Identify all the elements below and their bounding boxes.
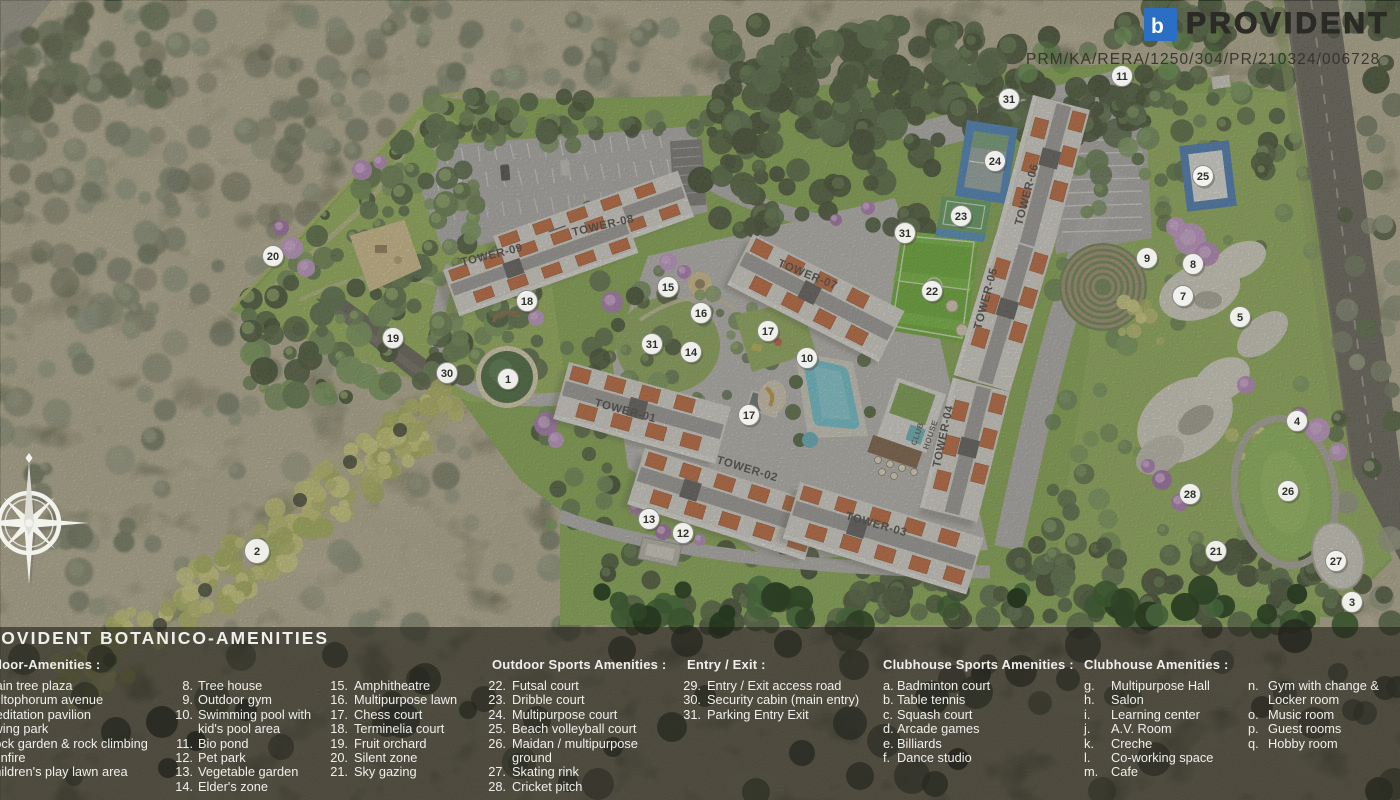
svg-text:Guest rooms: Guest rooms [1268,721,1341,736]
svg-text:20: 20 [267,251,279,263]
svg-text:PROVIDENT: PROVIDENT [1186,7,1390,40]
svg-text:Rock garden & rock climbing: Rock garden & rock climbing [0,736,148,751]
svg-text:k.: k. [1084,736,1094,751]
svg-text:22: 22 [926,286,938,298]
svg-text:25: 25 [1197,171,1209,183]
svg-text:Entry / Exit access road: Entry / Exit access road [707,678,841,693]
svg-text:Badminton court: Badminton court [897,678,991,693]
svg-text:8: 8 [1190,259,1196,271]
svg-text:Skating rink: Skating rink [512,764,579,779]
svg-text:21.: 21. [330,764,348,779]
svg-text:24.: 24. [488,707,506,722]
svg-text:Chess court: Chess court [354,707,423,722]
svg-text:Children's play lawn area: Children's play lawn area [0,764,128,779]
svg-text:31: 31 [899,228,911,240]
svg-text:17: 17 [762,326,774,338]
svg-text:20.: 20. [330,750,348,765]
svg-text:n.: n. [1248,678,1259,693]
svg-text:14: 14 [685,347,698,359]
svg-text:Peltophorum avenue: Peltophorum avenue [0,692,103,707]
svg-text:Music room: Music room [1268,707,1334,722]
svg-text:28.: 28. [488,779,506,794]
svg-text:1: 1 [505,374,511,386]
svg-text:11.: 11. [176,736,193,751]
svg-text:e.: e. [883,736,894,751]
svg-text:19: 19 [387,333,399,345]
svg-text:13.: 13. [175,764,193,779]
svg-text:31: 31 [1003,94,1015,106]
svg-text:d.: d. [883,721,894,736]
svg-text:Bio pond: Bio pond [198,736,249,751]
svg-text:Table tennis: Table tennis [897,692,965,707]
svg-text:q.: q. [1248,736,1259,751]
svg-text:30.: 30. [683,692,701,707]
svg-text:Parking Entry Exit: Parking Entry Exit [707,707,809,722]
svg-text:A.V. Room: A.V. Room [1111,721,1172,736]
svg-text:13: 13 [643,514,655,526]
svg-text:14.: 14. [175,779,193,794]
svg-text:m.: m. [1084,764,1098,779]
svg-text:7: 7 [1180,291,1186,303]
svg-text:30: 30 [441,368,453,380]
svg-text:18.: 18. [330,721,348,736]
svg-text:b: b [1151,15,1164,38]
svg-text:Learning center: Learning center [1111,707,1201,722]
svg-text:Cafe: Cafe [1111,764,1138,779]
svg-text:Outdoor Sports Amenities :: Outdoor Sports Amenities : [492,657,666,672]
svg-text:Creche: Creche [1111,736,1152,751]
svg-text:Amphitheatre: Amphitheatre [354,678,430,693]
svg-text:Elder's zone: Elder's zone [198,779,268,794]
svg-text:Sky gazing: Sky gazing [354,764,417,779]
svg-text:f.: f. [883,750,890,765]
svg-text:Vegetable garden: Vegetable garden [198,764,298,779]
svg-text:Multipurpose court: Multipurpose court [512,707,618,722]
svg-text:15.: 15. [330,678,348,693]
svg-text:h.: h. [1084,692,1095,707]
svg-text:Dribble court: Dribble court [512,692,585,707]
svg-text:p.: p. [1248,721,1259,736]
svg-text:Terminelia court: Terminelia court [354,721,445,736]
svg-text:27.: 27. [488,764,506,779]
svg-text:c.: c. [883,707,893,722]
svg-text:23.: 23. [488,692,506,707]
svg-text:Arcade games: Arcade games [897,721,980,736]
svg-text:29.: 29. [683,678,701,693]
svg-text:Security cabin (main entry): Security cabin (main entry) [707,692,859,707]
svg-text:26: 26 [1282,486,1294,498]
svg-text:22.: 22. [488,678,506,693]
svg-text:Co-working space: Co-working space [1111,750,1213,765]
svg-text:31.: 31. [683,707,701,722]
svg-text:31: 31 [646,339,658,351]
svg-text:Meditation pavilion: Meditation pavilion [0,707,91,722]
svg-text:l.: l. [1084,750,1090,765]
svg-text:o.: o. [1248,707,1259,722]
svg-text:Tree house: Tree house [198,678,262,693]
svg-text:PROVIDENT BOTANICO-AMENITIES: PROVIDENT BOTANICO-AMENITIES [0,628,329,648]
svg-text:Main tree plaza: Main tree plaza [0,678,73,693]
svg-text:25.: 25. [488,721,506,736]
svg-text:28: 28 [1184,489,1196,501]
svg-text:b.: b. [883,692,894,707]
svg-text:Cricket pitch: Cricket pitch [512,779,582,794]
svg-text:Multipurpose lawn: Multipurpose lawn [354,692,457,707]
svg-text:15: 15 [662,282,674,294]
svg-text:kid's pool area: kid's pool area [198,721,281,736]
svg-text:17.: 17. [330,707,348,722]
svg-text:Billiards: Billiards [897,736,942,751]
svg-text:PRM/KA/RERA/1250/304/PR/210324: PRM/KA/RERA/1250/304/PR/210324/006728 [1026,51,1380,68]
svg-text:16.: 16. [330,692,348,707]
svg-text:Maidan / multipurpose: Maidan / multipurpose [512,736,638,751]
svg-text:21: 21 [1210,546,1222,558]
svg-text:Entry / Exit :: Entry / Exit : [687,657,766,672]
svg-text:10: 10 [801,353,813,365]
svg-text:Outdoor gym: Outdoor gym [198,692,272,707]
svg-text:Multipurpose Hall: Multipurpose Hall [1111,678,1210,693]
svg-text:Beach volleyball court: Beach volleyball court [512,721,637,736]
svg-text:Futsal court: Futsal court [512,678,579,693]
svg-text:12: 12 [677,528,689,540]
svg-text:24: 24 [989,156,1002,168]
svg-text:18: 18 [521,296,533,308]
svg-text:26.: 26. [488,736,506,751]
svg-text:2: 2 [254,546,260,558]
svg-text:Pet park: Pet park [198,750,246,765]
svg-text:Dance studio: Dance studio [897,750,972,765]
svg-text:Fruit orchard: Fruit orchard [354,736,427,751]
svg-text:i.: i. [1084,707,1090,722]
svg-text:Clubhouse Sports Amenities :: Clubhouse Sports Amenities : [883,657,1074,672]
svg-text:Gym with change &: Gym with change & [1268,678,1379,693]
svg-text:17: 17 [743,410,755,422]
svg-text:Clubhouse Amenities :: Clubhouse Amenities : [1084,657,1229,672]
svg-text:27: 27 [1330,556,1342,568]
svg-text:8.: 8. [182,678,193,693]
svg-text:23: 23 [955,211,967,223]
svg-text:ground: ground [512,750,552,765]
svg-text:9.: 9. [182,692,193,707]
svg-text:5: 5 [1237,312,1243,324]
svg-text:16: 16 [695,308,707,320]
svg-text:9: 9 [1144,253,1150,265]
svg-text:Locker room: Locker room [1268,692,1339,707]
svg-text:Bonfire: Bonfire [0,750,26,765]
svg-text:Swimming pool with: Swimming pool with [198,707,311,722]
svg-text:Silent zone: Silent zone [354,750,417,765]
svg-text:Squash court: Squash court [897,707,973,722]
svg-text:j.: j. [1083,721,1090,736]
svg-text:4: 4 [1294,416,1301,428]
svg-text:Hobby room: Hobby room [1268,736,1338,751]
svg-text:Outdoor-Amenities :: Outdoor-Amenities : [0,657,100,672]
svg-text:Salon: Salon [1111,692,1144,707]
svg-text:12.: 12. [175,750,193,765]
svg-text:19.: 19. [330,736,348,751]
svg-text:3: 3 [1349,597,1355,609]
svg-text:g.: g. [1084,678,1095,693]
svg-text:Swing park: Swing park [0,721,49,736]
svg-text:11: 11 [1116,71,1128,83]
svg-text:10.: 10. [175,707,193,722]
svg-text:a.: a. [883,678,894,693]
